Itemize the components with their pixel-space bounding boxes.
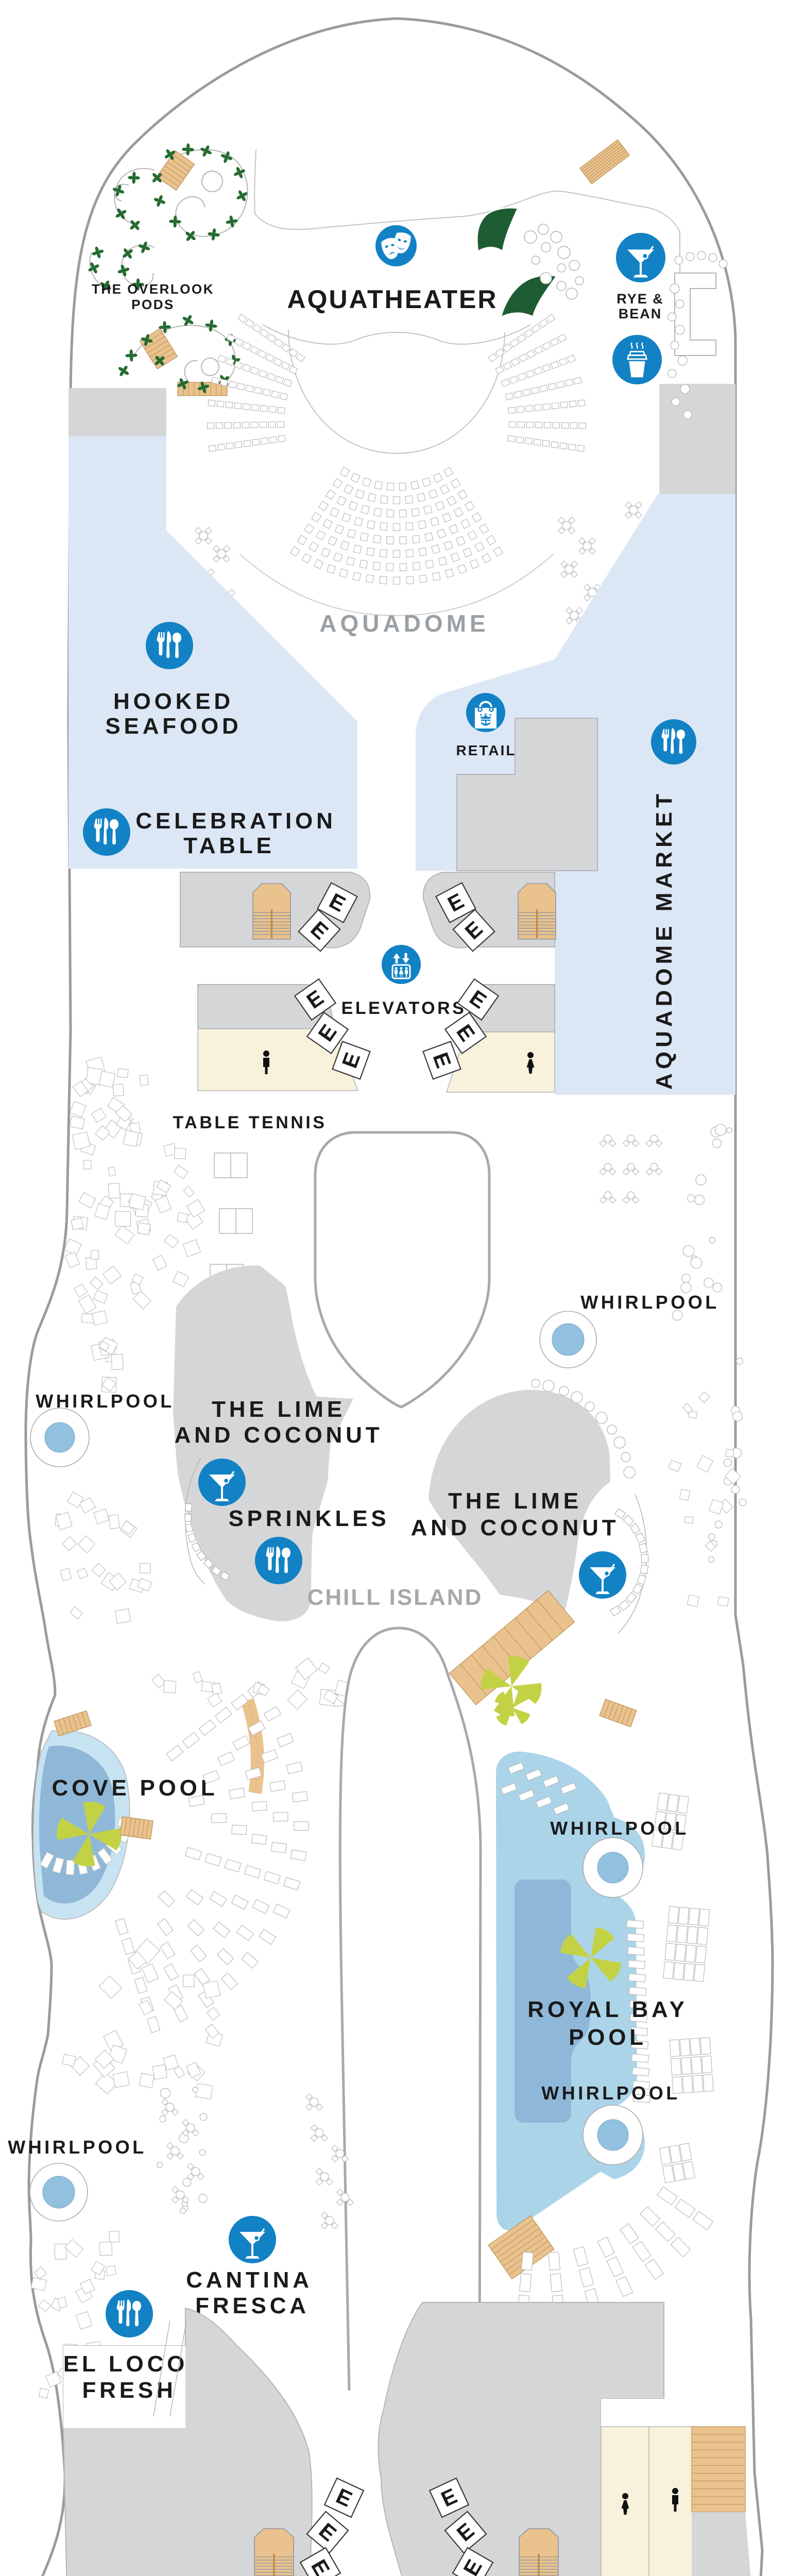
svg-text:WHIRLPOOL: WHIRLPOOL (550, 1818, 689, 1839)
svg-text:FRESH: FRESH (82, 2378, 176, 2403)
svg-text:HOOKED: HOOKED (113, 689, 234, 714)
svg-text:CELEBRATION: CELEBRATION (135, 808, 336, 834)
svg-text:EL LOCO: EL LOCO (63, 2351, 188, 2377)
svg-text:CANTINA: CANTINA (186, 2267, 313, 2293)
svg-text:THE LIME: THE LIME (212, 1397, 346, 1422)
svg-text:WHIRLPOOL: WHIRLPOOL (580, 1292, 719, 1313)
svg-text:SEAFOOD: SEAFOOD (105, 714, 242, 739)
svg-text:WHIRLPOOL: WHIRLPOOL (8, 2137, 146, 2158)
svg-text:POOL: POOL (569, 2025, 647, 2050)
svg-text:COVE POOL: COVE POOL (52, 1775, 218, 1801)
svg-text:PODS: PODS (131, 297, 175, 312)
svg-text:BEAN: BEAN (619, 306, 662, 321)
svg-text:FRESCA: FRESCA (195, 2293, 310, 2318)
svg-text:THE LIME: THE LIME (448, 1488, 582, 1514)
svg-text:AQUADOME MARKET: AQUADOME MARKET (652, 790, 677, 1090)
svg-text:TABLE TENNIS: TABLE TENNIS (173, 1113, 327, 1132)
svg-text:AQUATHEATER: AQUATHEATER (287, 285, 498, 314)
svg-text:RETAIL: RETAIL (456, 742, 516, 758)
svg-text:THE OVERLOOK: THE OVERLOOK (92, 281, 214, 297)
svg-text:AQUADOME: AQUADOME (319, 610, 489, 637)
svg-text:ROYAL BAY: ROYAL BAY (527, 1997, 688, 2022)
svg-text:AND COCONUT: AND COCONUT (175, 1422, 383, 1448)
svg-text:AND COCONUT: AND COCONUT (411, 1515, 620, 1540)
svg-text:WHIRLPOOL: WHIRLPOOL (541, 2082, 680, 2104)
svg-text:CHILL ISLAND: CHILL ISLAND (307, 1585, 483, 1610)
svg-text:TABLE: TABLE (183, 833, 275, 858)
svg-text:ELEVATORS: ELEVATORS (341, 998, 467, 1018)
svg-text:SPRINKLES: SPRINKLES (228, 1506, 389, 1531)
svg-text:RYE &: RYE & (616, 291, 664, 307)
